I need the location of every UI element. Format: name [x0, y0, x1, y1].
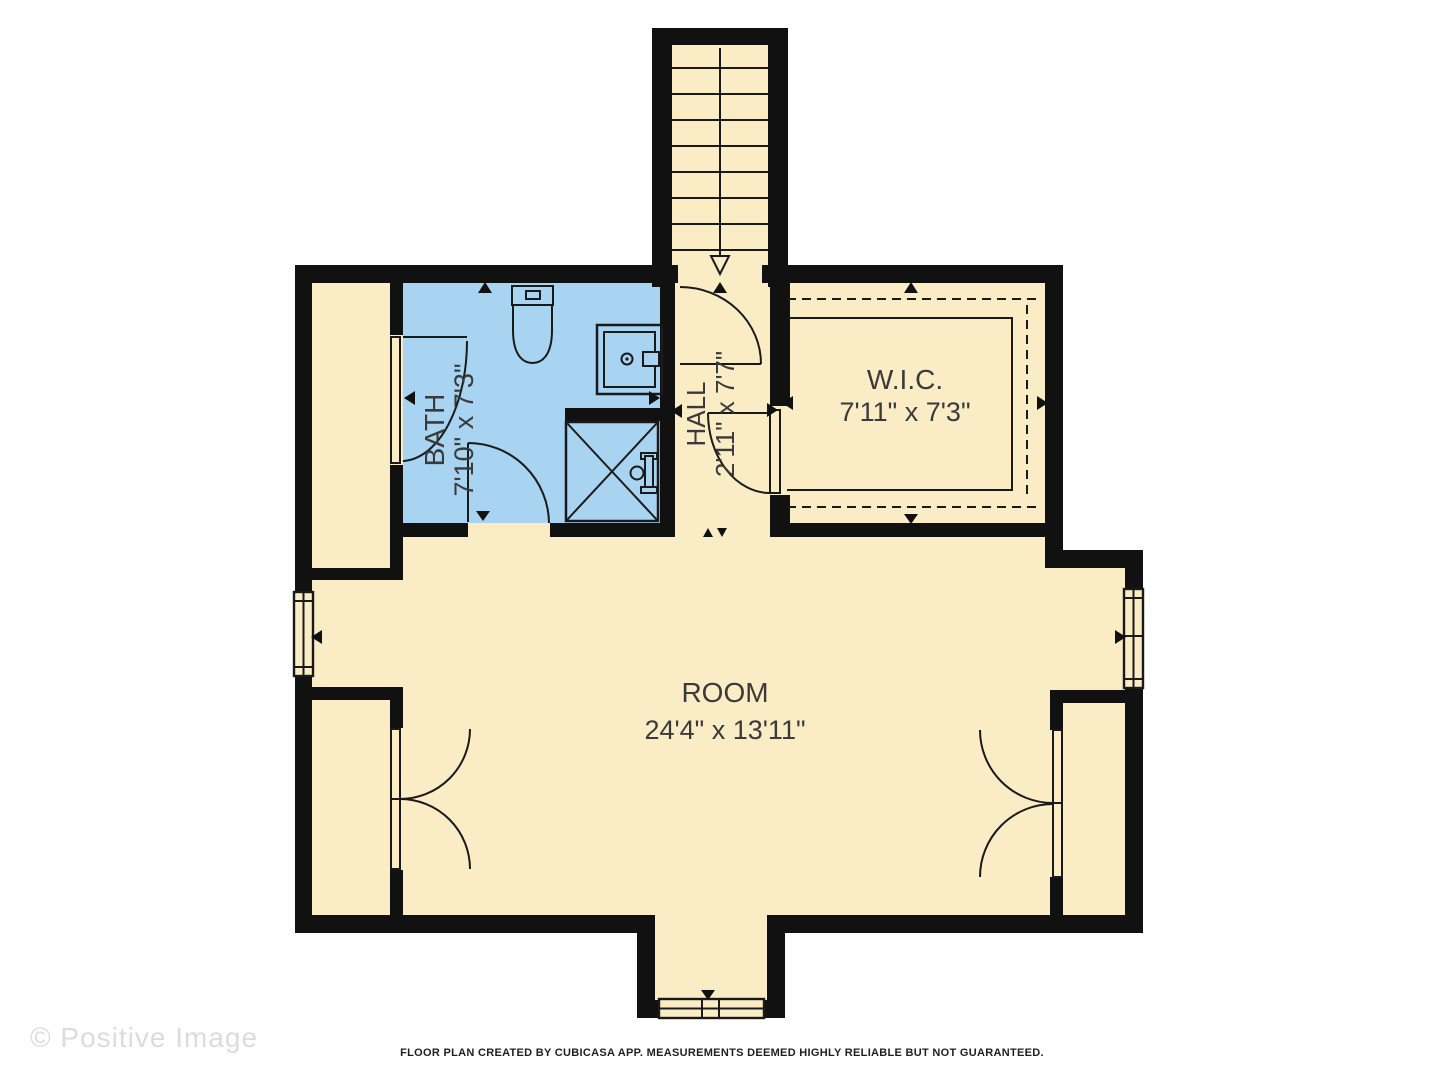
room-dims: 24'4" x 13'11" — [644, 715, 805, 745]
right-jog-wall — [1045, 550, 1143, 568]
stairs-left-wall — [652, 28, 672, 287]
shower-knob — [631, 467, 644, 480]
wic-right-wall — [1045, 265, 1063, 568]
hall-label: HALL — [681, 381, 711, 446]
strip-bottom-wall — [295, 568, 403, 580]
wic-dims: 7'11" x 7'3" — [839, 397, 970, 427]
stairs-right-wall — [768, 28, 788, 287]
shower-valve-bar — [645, 456, 653, 490]
floor-areas — [312, 45, 1125, 1000]
bottom-right-wall — [785, 915, 1143, 933]
storage-strip-floor — [312, 283, 390, 568]
left-window — [294, 592, 313, 676]
room-floor-bay — [655, 915, 785, 1000]
bath-label: BATH — [419, 394, 450, 467]
stairs-top-wall — [652, 28, 788, 45]
watermark: © Positive Image — [30, 1022, 258, 1053]
hall-dims: 2'11" x 7'7" — [710, 351, 740, 477]
floor-plan-stage: BATH 7'10" x 7'3" HALL 2'11" x 7'7" W.I.… — [0, 0, 1440, 1080]
room-floor-right — [1063, 568, 1125, 915]
left-alcove-top-wall — [312, 687, 403, 700]
shower-valve-bottom — [641, 487, 657, 493]
right-alcove-top-wall — [1050, 690, 1143, 703]
footer-disclaimer: FLOOR PLAN CREATED BY CUBICASA APP. MEAS… — [400, 1047, 1044, 1059]
shower-top-wall — [565, 408, 672, 421]
room-label: ROOM — [681, 677, 768, 708]
bath-doorway-gap — [468, 523, 550, 537]
bath-dims: 7'10" x 7'3" — [449, 363, 479, 496]
wic-label: W.I.C. — [867, 364, 943, 395]
right-window — [1124, 589, 1143, 688]
bottom-bay-window — [659, 999, 764, 1018]
wic-bottom-wall — [770, 523, 1063, 537]
floor-plan-svg: BATH 7'10" x 7'3" HALL 2'11" x 7'7" W.I.… — [0, 0, 1440, 1080]
bottom-left-wall — [295, 915, 655, 933]
